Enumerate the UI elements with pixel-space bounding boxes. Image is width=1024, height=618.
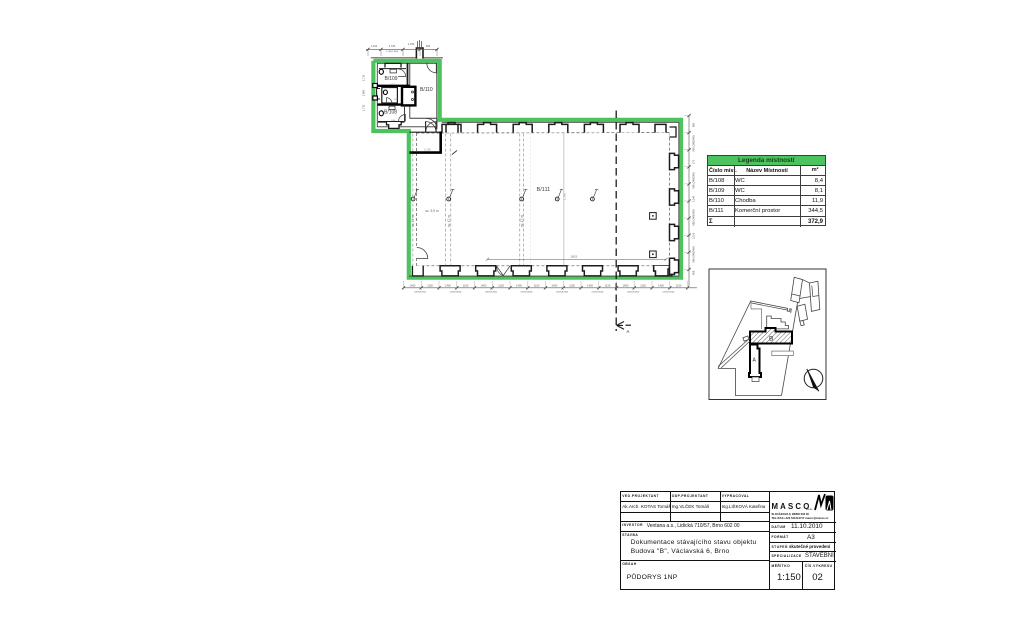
svg-text:1150: 1150 xyxy=(427,283,433,287)
svg-text:(1920/1940): (1920/1940) xyxy=(485,292,497,294)
svg-text:(1920/1940): (1920/1940) xyxy=(556,292,568,294)
svg-text:B/108: B/108 xyxy=(384,110,397,116)
svg-text:B/111: B/111 xyxy=(537,187,551,193)
svg-text:1150: 1150 xyxy=(569,283,575,287)
svg-text:2,150: 2,150 xyxy=(424,148,431,152)
svg-text:(1920/1940): (1920/1940) xyxy=(521,292,533,294)
svg-text:1800: 1800 xyxy=(391,120,397,122)
svg-text:1400: 1400 xyxy=(445,283,451,287)
svg-text:1,145: 1,145 xyxy=(562,193,566,200)
svg-text:1400: 1400 xyxy=(516,283,522,287)
svg-text:980 (248/248): 980 (248/248) xyxy=(692,246,696,262)
svg-text:1400: 1400 xyxy=(410,283,416,287)
svg-text:1,960: 1,960 xyxy=(362,89,366,96)
svg-text:B: B xyxy=(769,336,773,343)
svg-text:1400: 1400 xyxy=(658,283,664,287)
svg-text:600: 600 xyxy=(426,44,431,48)
svg-text:1400: 1400 xyxy=(552,283,558,287)
svg-text:1150: 1150 xyxy=(640,283,646,287)
svg-text:908: 908 xyxy=(692,270,696,275)
svg-text:1815: 1815 xyxy=(571,255,578,259)
svg-text:1800: 1800 xyxy=(390,84,396,86)
svg-text:A: A xyxy=(627,329,630,334)
svg-text:B/110: B/110 xyxy=(420,87,433,93)
svg-text:(1920/1940): (1920/1940) xyxy=(592,292,604,294)
svg-text:1,150(1,940): 1,150(1,940) xyxy=(386,51,399,53)
svg-text:980: 980 xyxy=(692,122,696,127)
svg-text:1150: 1150 xyxy=(463,283,469,287)
svg-text:(1920/1940): (1920/1940) xyxy=(414,292,426,294)
svg-text:sv. 17 m: sv. 17 m xyxy=(447,215,451,227)
svg-text:1150: 1150 xyxy=(676,283,682,287)
svg-text:170: 170 xyxy=(692,159,696,164)
svg-text:1400: 1400 xyxy=(587,283,593,287)
svg-text:1,710: 1,710 xyxy=(362,104,366,111)
svg-text:(1920/1940): (1920/1940) xyxy=(450,292,462,294)
svg-text:1,150: 1,150 xyxy=(408,42,415,46)
svg-text:1400: 1400 xyxy=(481,283,487,287)
svg-text:(1920/1940): (1920/1940) xyxy=(663,292,675,294)
svg-text:B/109: B/109 xyxy=(385,76,398,82)
svg-text:980 (248/248): 980 (248/248) xyxy=(692,172,696,188)
svg-text:960 (248/248): 960 (248/248) xyxy=(692,135,696,151)
svg-text:sv. 3,9 m: sv. 3,9 m xyxy=(425,209,439,213)
svg-text:sv. 17 m: sv. 17 m xyxy=(520,215,524,227)
svg-text:1,700: 1,700 xyxy=(389,44,396,48)
svg-text:1,110: 1,110 xyxy=(692,232,696,239)
svg-text:1,710: 1,710 xyxy=(362,74,366,81)
svg-text:1150: 1150 xyxy=(534,283,540,287)
svg-text:1150: 1150 xyxy=(498,283,504,287)
svg-text:980 (248/248): 980 (248/248) xyxy=(692,209,696,225)
svg-text:sv. 17 m: sv. 17 m xyxy=(411,215,415,227)
svg-text:1150: 1150 xyxy=(605,283,611,287)
svg-text:1400: 1400 xyxy=(623,283,629,287)
svg-text:1,140: 1,140 xyxy=(692,195,696,202)
svg-text:(1920/1940): (1920/1940) xyxy=(627,292,639,294)
svg-text:1,100: 1,100 xyxy=(371,44,378,48)
